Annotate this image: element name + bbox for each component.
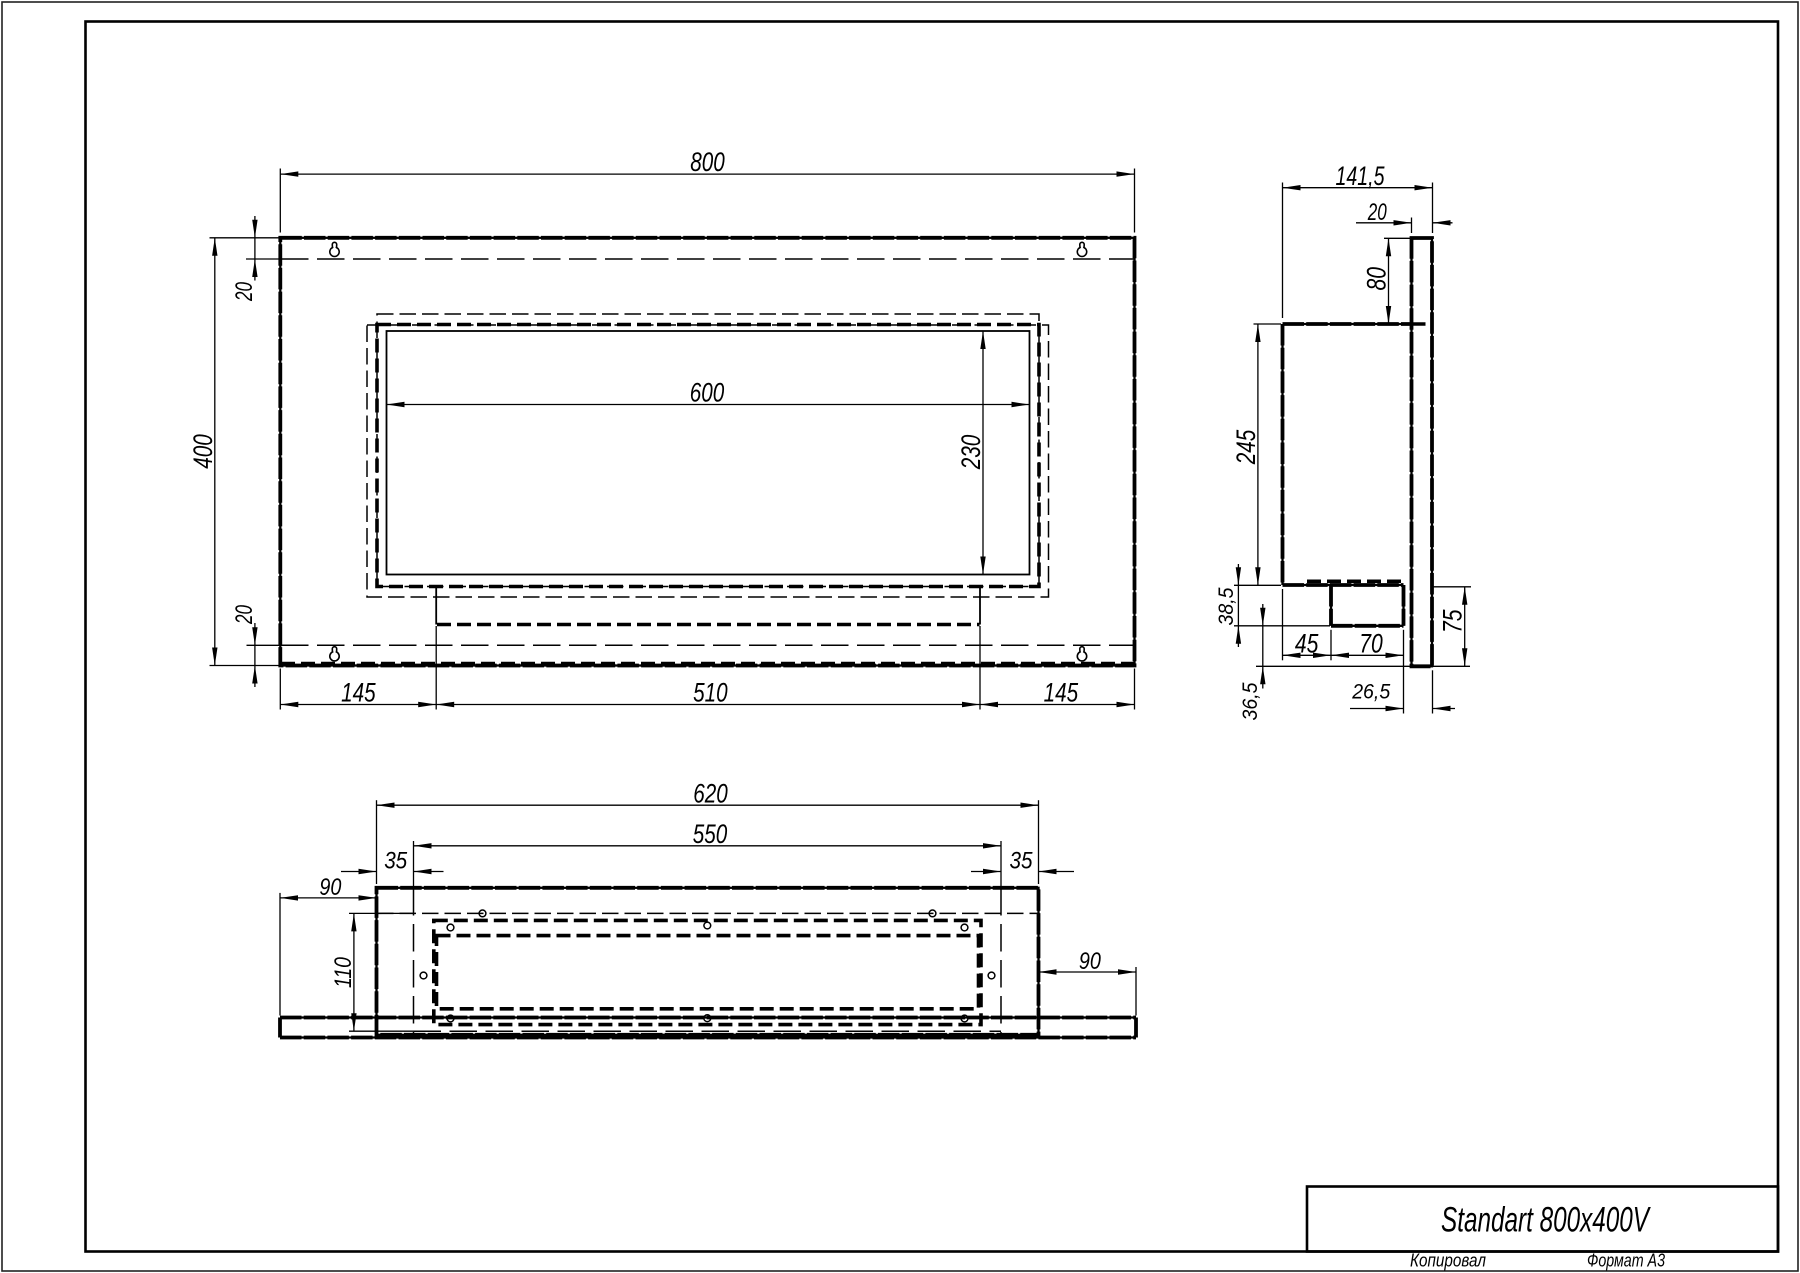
- svg-text:245: 245: [1231, 429, 1261, 465]
- svg-text:75: 75: [1438, 609, 1468, 633]
- svg-text:Формат А3: Формат А3: [1587, 1251, 1665, 1271]
- svg-text:26,5: 26,5: [1351, 681, 1390, 704]
- svg-text:80: 80: [1362, 267, 1392, 291]
- svg-text:400: 400: [188, 434, 218, 469]
- svg-text:800: 800: [690, 147, 725, 177]
- svg-text:20: 20: [231, 605, 258, 625]
- svg-text:141,5: 141,5: [1336, 161, 1386, 191]
- svg-text:90: 90: [1079, 948, 1102, 975]
- svg-text:20: 20: [231, 282, 258, 302]
- svg-text:38,5: 38,5: [1215, 587, 1238, 625]
- svg-text:45: 45: [1295, 629, 1319, 659]
- svg-text:36,5: 36,5: [1239, 682, 1262, 720]
- svg-text:510: 510: [693, 678, 728, 708]
- svg-text:550: 550: [693, 819, 728, 849]
- svg-text:20: 20: [1367, 199, 1387, 226]
- svg-text:620: 620: [693, 778, 728, 808]
- svg-text:35: 35: [384, 848, 408, 875]
- svg-text:110: 110: [330, 956, 357, 988]
- svg-text:145: 145: [341, 678, 376, 708]
- svg-text:Копировал: Копировал: [1410, 1251, 1486, 1271]
- svg-text:35: 35: [1010, 848, 1034, 875]
- svg-text:90: 90: [319, 874, 342, 901]
- svg-text:Standart 800x400V: Standart 800x400V: [1441, 1201, 1652, 1240]
- svg-text:600: 600: [690, 378, 725, 408]
- svg-text:230: 230: [956, 435, 986, 470]
- svg-text:145: 145: [1044, 678, 1079, 708]
- svg-text:70: 70: [1359, 629, 1383, 659]
